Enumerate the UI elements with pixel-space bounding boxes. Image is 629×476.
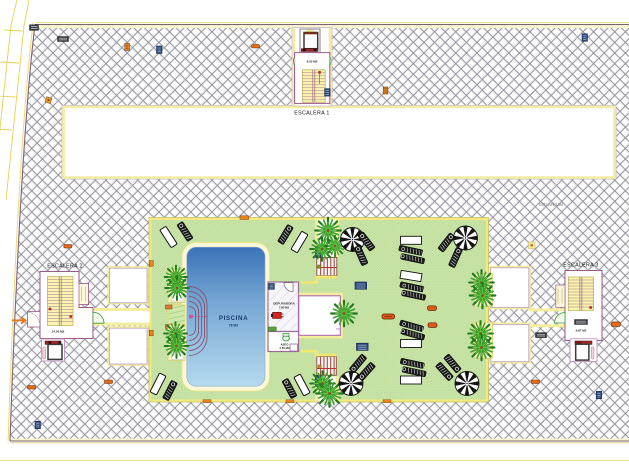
svg-text:PISCINA: PISCINA bbox=[219, 315, 248, 322]
svg-text:ESCALERA 2: ESCALERA 2 bbox=[47, 264, 82, 270]
svg-text:14.50 M2: 14.50 M2 bbox=[52, 330, 65, 334]
svg-text:ESCALERA 1: ESCALERA 1 bbox=[294, 111, 329, 117]
svg-text:7.80 M2: 7.80 M2 bbox=[279, 306, 290, 310]
svg-text:9.87 M2: 9.87 M2 bbox=[576, 329, 587, 333]
svg-text:78 M2: 78 M2 bbox=[229, 324, 239, 328]
svg-text:8.00 M2: 8.00 M2 bbox=[307, 59, 318, 63]
svg-text:ESCALERA 3: ESCALERA 3 bbox=[563, 263, 598, 269]
svg-text:SOLARIUM: SOLARIUM bbox=[539, 202, 563, 207]
svg-text:2.50 M2: 2.50 M2 bbox=[279, 346, 290, 350]
